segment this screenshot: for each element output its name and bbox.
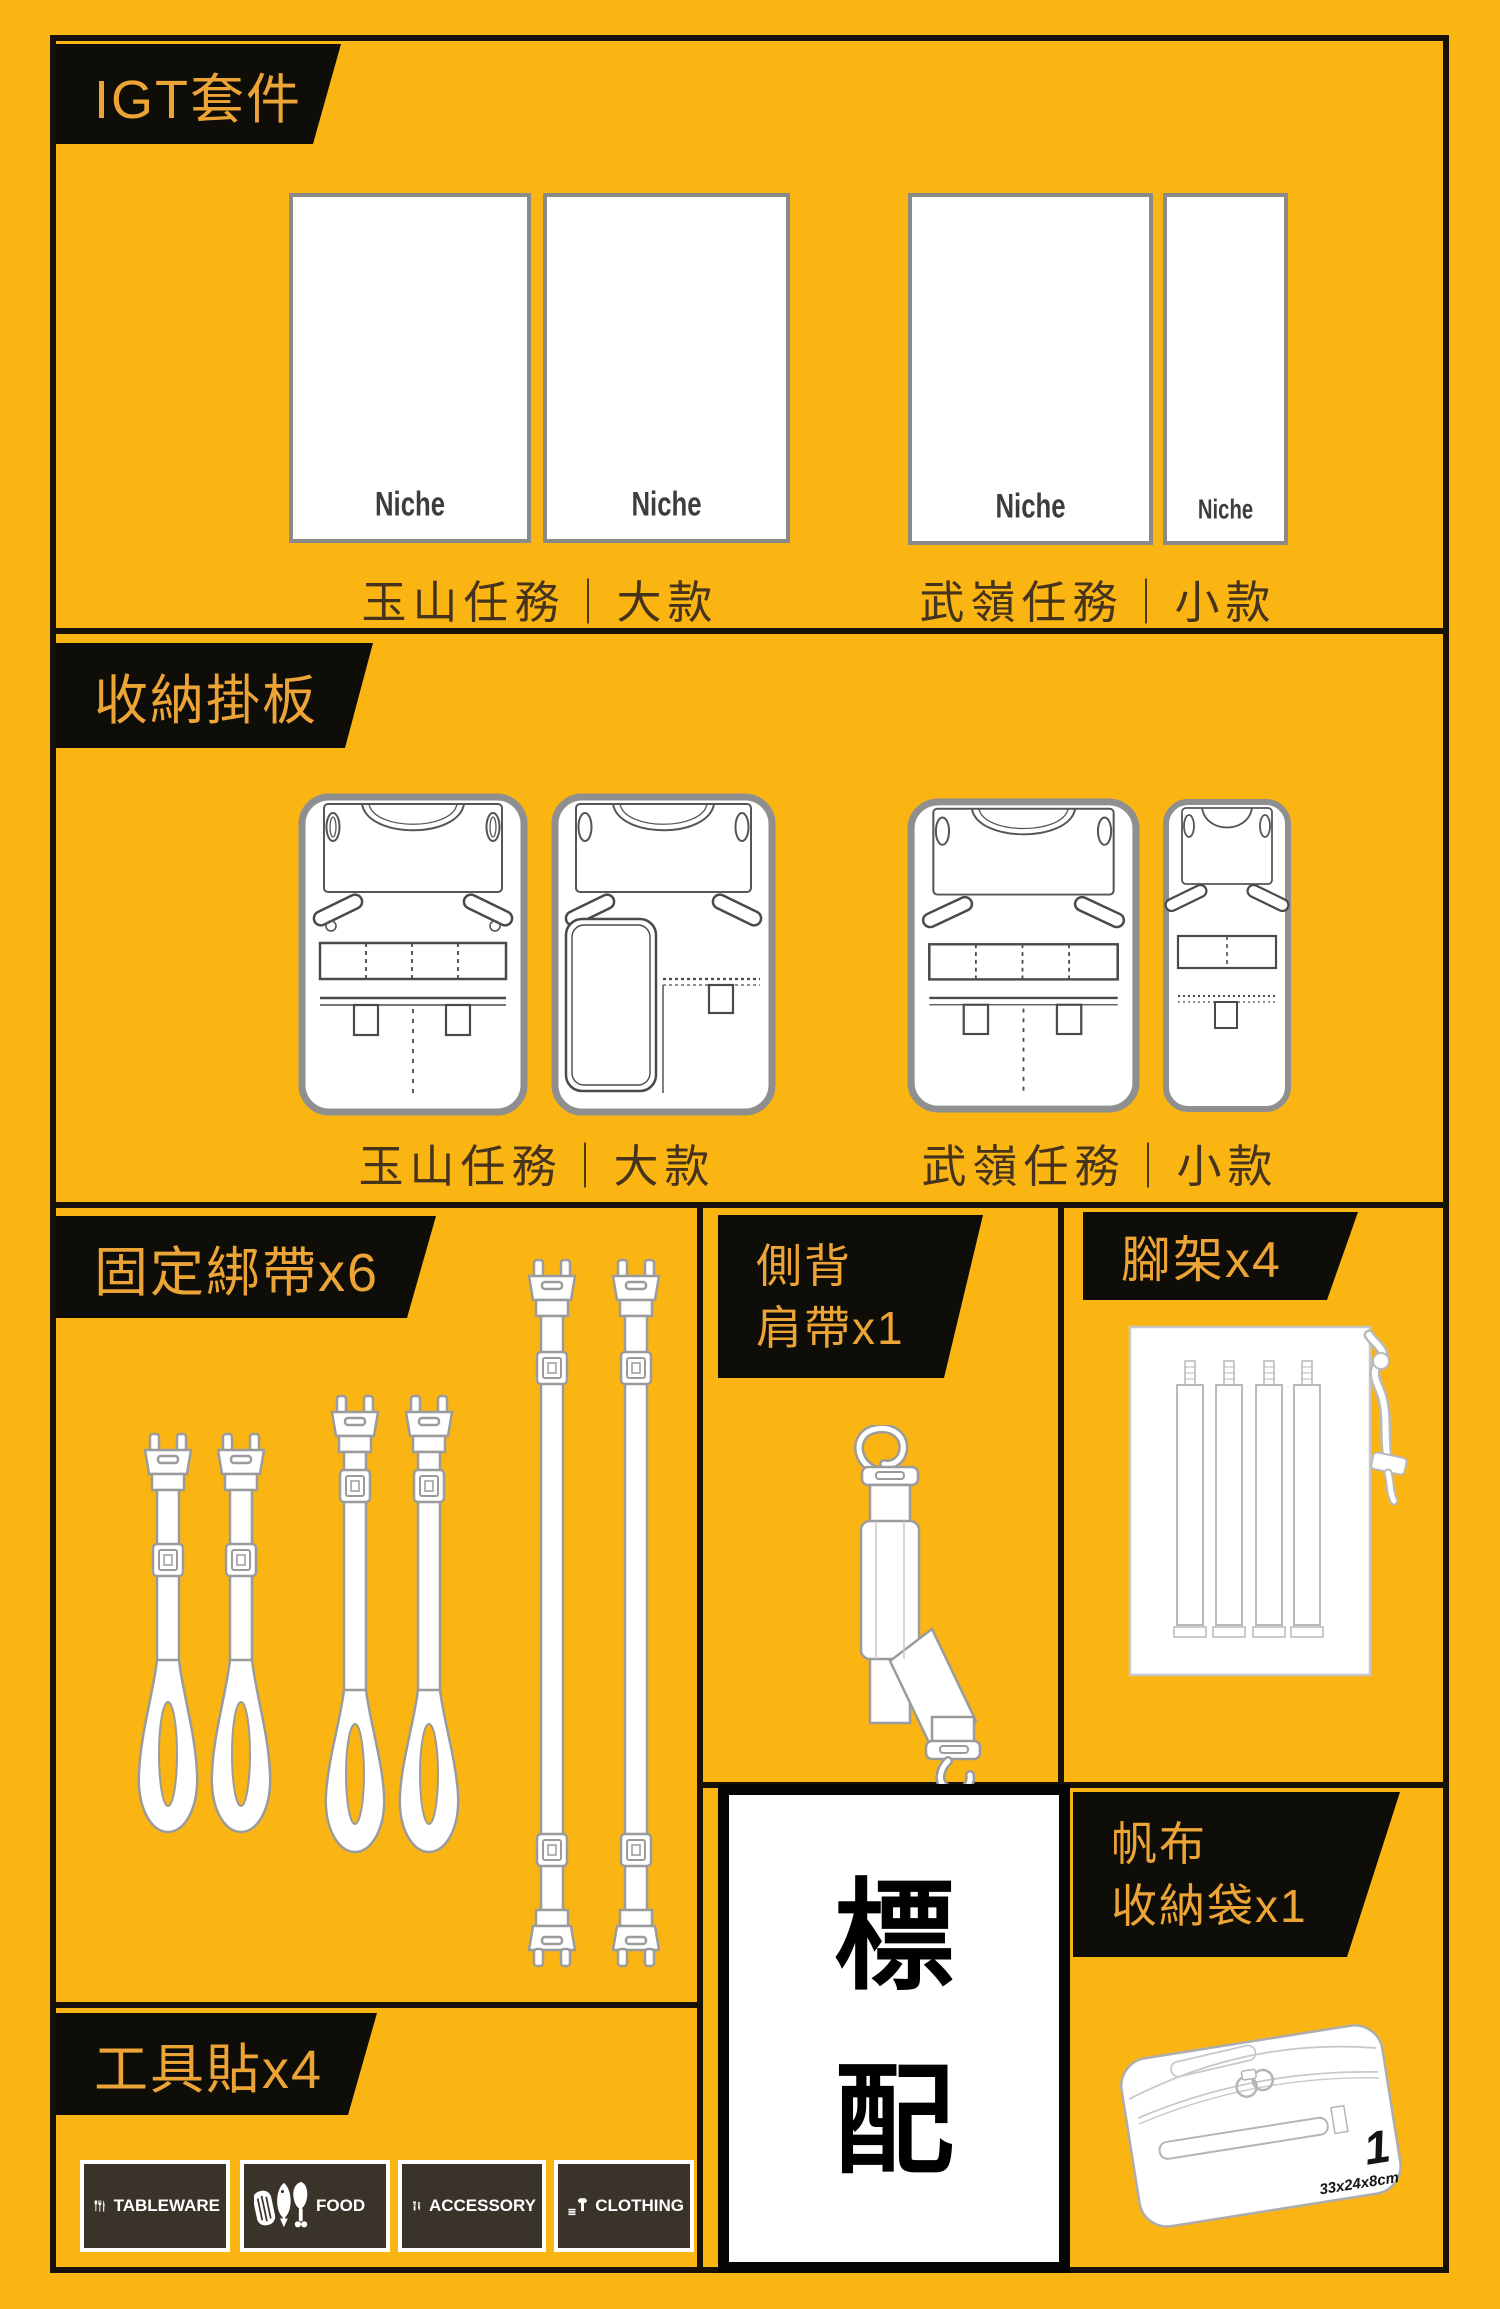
banner-bag-line1: 帆布 [1111,1813,1400,1875]
patch-clothing-label: CLOTHING [595,2196,684,2216]
patch-food: FOOD [240,2160,390,2252]
caption-igt-large: 玉山任務｜大款 [290,566,790,631]
banner-legs-label: 腳架x4 [1121,1220,1358,1292]
frame-left [50,35,56,2273]
banner-shoulder-line2: 肩帶x1 [756,1297,983,1359]
strap-medium-1-illustration [315,1394,395,1857]
infographic-canvas: IGT套件 收納掛板 固定綁帶x6 側背 肩帶x1 腳架x4 帆布 收納袋x1 … [0,0,1500,2309]
niche-logo: Niche [573,484,759,524]
strap-short-2-illustration [201,1432,281,1837]
igt-panel-large-2: Niche [543,193,790,543]
patch-accessory: ACCESSORY [398,2160,546,2252]
patch-food-label: FOOD [316,2196,365,2216]
caption-hangboard-small: 武嶺任務｜小款 [850,1130,1350,1195]
table-legs-illustration [1118,1315,1428,1715]
hangboard-large-pocket-illustration [551,793,776,1116]
tableware-icon [94,2176,106,2236]
banner-tools: 工具貼x4 [56,2013,377,2115]
shoulder-strap-illustration [790,1425,990,1795]
canvas-bag-illustration: 1 33x24x8cm [1100,1995,1420,2245]
patch-tableware: TABLEWARE [80,2160,230,2252]
standard-config-char-1: 標 [834,1877,954,1997]
patch-tableware-label: TABLEWARE [114,2196,220,2216]
hangboard-small-illustration [907,798,1140,1113]
strap-short-1-illustration [128,1432,208,1837]
frame-right [1443,35,1449,2273]
standard-config-box: 標 配 [718,1784,1070,2273]
food-icon [254,2176,308,2236]
banner-bag: 帆布 收納袋x1 [1073,1792,1400,1957]
divider-vert-left [697,1202,703,2273]
banner-hangboard-label: 收納掛板 [94,656,373,735]
banner-shoulder: 側背 肩帶x1 [718,1215,983,1378]
divider-section2 [50,1202,1449,1208]
strap-long-2-illustration [596,1258,676,1968]
banner-igt-label: IGT套件 [94,55,341,134]
niche-logo: Niche [1180,493,1271,526]
hangboard-narrow-illustration [1162,798,1292,1113]
patch-clothing: CLOTHING [554,2160,694,2252]
divider-tools [50,2002,703,2008]
banner-igt: IGT套件 [56,44,341,144]
standard-config-char-2: 配 [834,2061,954,2181]
igt-panel-small-1: Niche [908,193,1153,545]
tshirt-icon [568,2177,587,2235]
banner-straps: 固定綁帶x6 [56,1216,436,1318]
niche-logo: Niche [938,486,1123,526]
banner-tools-label: 工具貼x4 [94,2025,377,2104]
banner-hangboard: 收納掛板 [56,643,373,748]
hangboard-large-illustration [298,793,528,1116]
frame-top [50,35,1449,41]
banner-straps-label: 固定綁帶x6 [94,1228,436,1307]
igt-panel-small-2: Niche [1163,193,1288,545]
banner-legs: 腳架x4 [1083,1212,1358,1300]
banner-shoulder-line1: 側背 [756,1235,983,1297]
strap-medium-2-illustration [389,1394,469,1857]
banner-bag-line2: 收納袋x1 [1111,1875,1400,1937]
flashlight-icon [412,2176,421,2236]
patch-accessory-label: ACCESSORY [429,2196,536,2216]
niche-logo: Niche [319,484,502,524]
strap-long-1-illustration [512,1258,592,1968]
divider-vert-right [1058,1202,1064,1788]
drawstring-cord [1369,1335,1407,1501]
caption-hangboard-large: 玉山任務｜大款 [287,1130,787,1195]
caption-igt-small: 武嶺任務｜小款 [848,566,1348,631]
igt-panel-large-1: Niche [289,193,531,543]
